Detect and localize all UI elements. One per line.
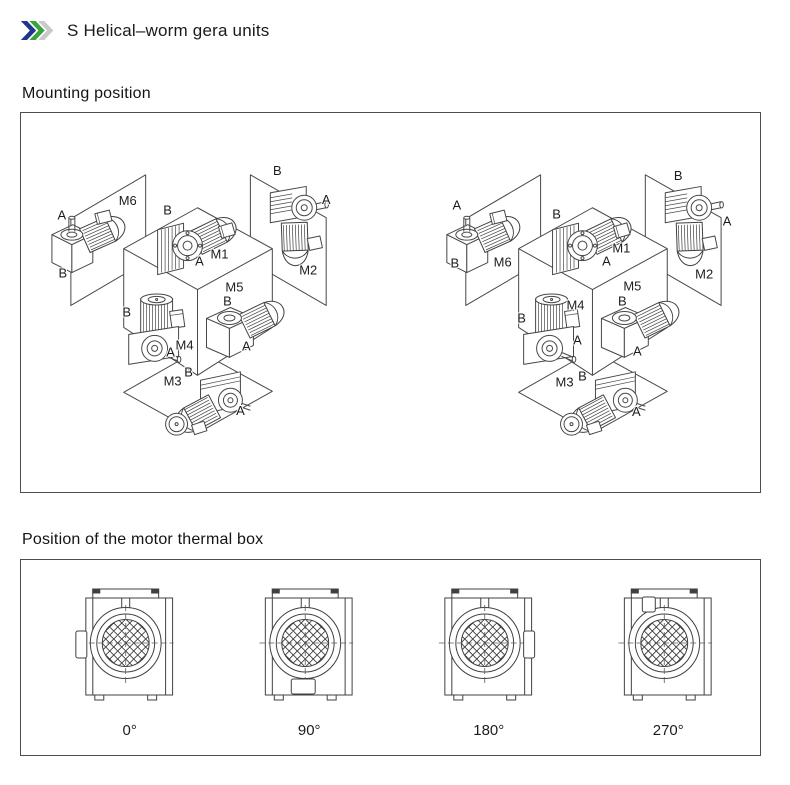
mount-label-left-a: A bbox=[58, 208, 67, 223]
mount-label-right-a: A bbox=[573, 332, 582, 347]
mount-label-left-b: B bbox=[122, 304, 131, 319]
mount-label-left-a: A bbox=[236, 403, 245, 418]
mount-label-left-m6: M6 bbox=[119, 193, 137, 208]
mount-label-right-b: B bbox=[517, 310, 526, 325]
mounting-diagram-left bbox=[52, 175, 329, 438]
thermal-box-left bbox=[76, 631, 87, 658]
angle-label: 0° bbox=[123, 722, 137, 739]
mount-label-right-b: B bbox=[552, 207, 561, 222]
mount-label-left-m1: M1 bbox=[210, 247, 228, 262]
thermal-diagram: 0°90°180°270° bbox=[21, 560, 760, 755]
header: S Helical–worm gera units bbox=[20, 20, 269, 41]
mount-label-right-m2: M2 bbox=[695, 267, 713, 282]
mount-label-left-m2: M2 bbox=[299, 263, 317, 278]
mount-label-right-a: A bbox=[633, 343, 642, 358]
mounting-heading: Mounting position bbox=[22, 85, 151, 103]
mount-label-right-b: B bbox=[618, 293, 627, 308]
mount-label-right-m6: M6 bbox=[494, 255, 512, 270]
angle-label: 180° bbox=[473, 722, 504, 739]
thermal-box-right bbox=[524, 631, 535, 658]
mount-label-right-a: A bbox=[453, 198, 462, 213]
mounting-diagram: AM6BBM1ABAM2BM4AM5BAM3BAABM6BM1ABAM2M4BA… bbox=[21, 113, 760, 492]
thermal-heading: Position of the motor thermal box bbox=[22, 531, 263, 549]
motor-figure-90°: 90° bbox=[259, 577, 353, 739]
mount-label-left-a: A bbox=[242, 338, 251, 353]
motor-figure-270°: 270° bbox=[618, 577, 712, 739]
mount-label-left-b: B bbox=[223, 293, 232, 308]
thermal-box-bottom bbox=[291, 679, 315, 694]
angle-label: 90° bbox=[298, 722, 321, 739]
mount-label-right-m4: M4 bbox=[566, 297, 584, 312]
mount-label-left-m3: M3 bbox=[164, 373, 182, 388]
mount-label-right-a: A bbox=[723, 214, 732, 229]
mount-label-right-m3: M3 bbox=[556, 374, 574, 389]
motor-figure-180°: 180° bbox=[439, 577, 535, 739]
mount-label-right-a: A bbox=[632, 404, 641, 419]
mount-label-left-a: A bbox=[195, 254, 204, 269]
mount-label-left-m4: M4 bbox=[176, 337, 194, 352]
angle-label: 270° bbox=[653, 722, 684, 739]
mount-label-left-m5: M5 bbox=[225, 280, 243, 295]
page-title: S Helical–worm gera units bbox=[67, 21, 269, 41]
mount-label-left-b: B bbox=[273, 163, 282, 178]
motor-figure-0°: 0° bbox=[76, 577, 174, 739]
mount-label-left-b: B bbox=[184, 364, 193, 379]
mount-label-right-a: A bbox=[602, 254, 611, 269]
mount-label-right-m1: M1 bbox=[612, 241, 630, 256]
mount-label-right-b: B bbox=[451, 256, 460, 271]
mount-label-right-m5: M5 bbox=[623, 279, 641, 294]
motor-front-view bbox=[80, 577, 174, 709]
mounting-panel: AM6BBM1ABAM2BM4AM5BAM3BAABM6BM1ABAM2M4BA… bbox=[20, 112, 761, 493]
mount-label-right-b: B bbox=[578, 368, 587, 383]
mount-label-left-a: A bbox=[322, 192, 331, 207]
thermal-box-top bbox=[642, 597, 655, 612]
motor-front-view bbox=[618, 577, 712, 709]
mount-label-left-b: B bbox=[59, 266, 68, 281]
thermal-panel: 0°90°180°270° bbox=[20, 559, 761, 756]
page: S Helical–worm gera units Mounting posit… bbox=[0, 0, 790, 785]
mount-label-left-a: A bbox=[166, 344, 175, 359]
chevrons-icon bbox=[20, 20, 57, 41]
mounting-diagram-right bbox=[447, 175, 724, 438]
mount-label-right-b: B bbox=[674, 168, 683, 183]
mount-label-left-b: B bbox=[163, 203, 172, 218]
motor-front-view bbox=[439, 577, 533, 709]
